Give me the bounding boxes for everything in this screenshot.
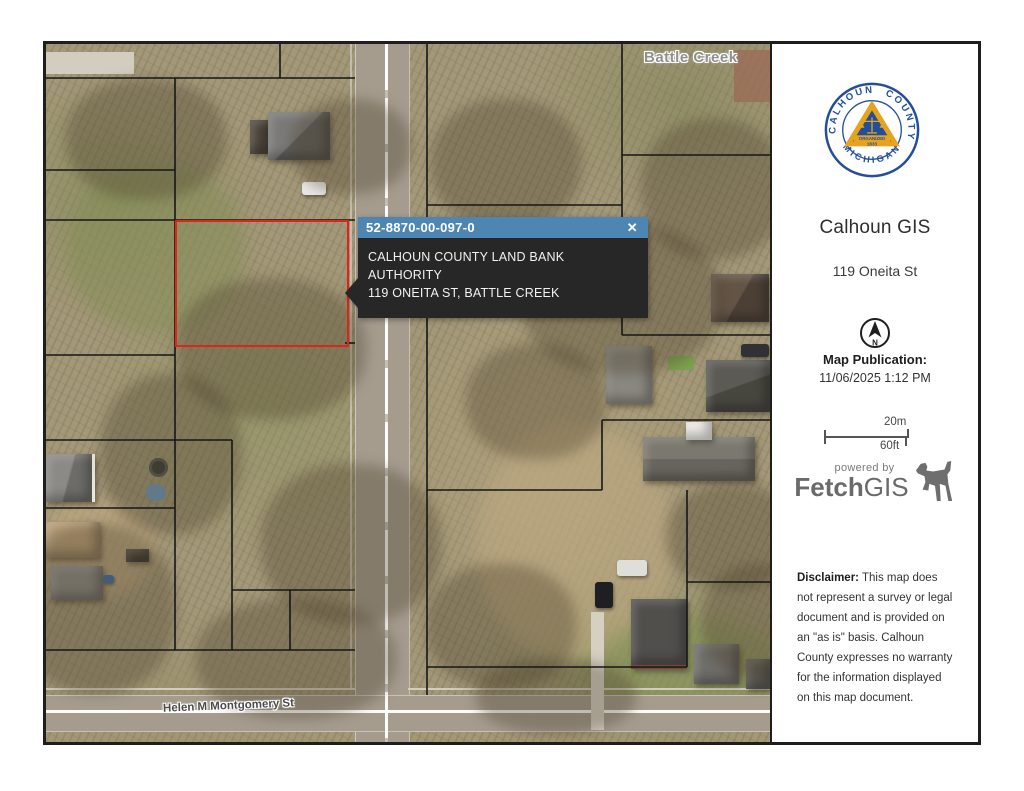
calhoun-county-seal-icon: CALHOUN COUNTY MICHIGAN ORGANIZED 1833 xyxy=(824,82,920,178)
parcel-lines-layer xyxy=(46,44,770,742)
selected-parcel-outline[interactable] xyxy=(175,220,349,347)
disclaimer-label: Disclaimer: xyxy=(797,572,859,584)
fetchgis-brand: powered by FetchGIS xyxy=(772,458,978,504)
scale-bar-line xyxy=(824,436,909,438)
popup-pointer xyxy=(345,278,358,308)
disclaimer-text: Disclaimer: This map does not represent … xyxy=(797,568,953,708)
map-address-subtitle: 119 Oneita St xyxy=(772,263,978,279)
aerial-map[interactable]: Battle Creek Helen M Montgomery St 52-88… xyxy=(46,44,770,742)
city-label: Battle Creek xyxy=(644,49,738,66)
popup-header: 52-8870-00-097-0 ✕ xyxy=(358,217,648,238)
parcel-owner: CALHOUN COUNTY LAND BANK AUTHORITY xyxy=(368,248,638,284)
scale-bar-tick xyxy=(905,438,907,446)
parcel-address: 119 ONEITA ST, BATTLE CREEK xyxy=(368,284,638,302)
app-title: Calhoun GIS xyxy=(772,217,978,239)
popup-body: CALHOUN COUNTY LAND BANK AUTHORITY 119 O… xyxy=(358,238,648,318)
parcel-id: 52-8870-00-097-0 xyxy=(366,220,475,235)
scale-bar-tick xyxy=(824,430,826,444)
seal-year-text: 1833 xyxy=(867,141,878,146)
scale-bar-tick xyxy=(907,429,909,438)
north-letter: N xyxy=(872,339,878,348)
scale-metric-label: 20m xyxy=(884,416,906,428)
brand-name-bold: Fetch xyxy=(794,472,863,502)
close-icon[interactable]: ✕ xyxy=(625,220,640,236)
gis-map-printout: Battle Creek Helen M Montgomery St 52-88… xyxy=(0,0,1024,791)
dog-logo-icon xyxy=(914,458,956,504)
scale-imperial-label: 60ft xyxy=(880,440,899,452)
map-frame: Battle Creek Helen M Montgomery St 52-88… xyxy=(43,41,981,745)
map-sidebar: CALHOUN COUNTY MICHIGAN ORGANIZED 1833 xyxy=(770,44,978,742)
brand-name-light: GIS xyxy=(864,472,909,502)
north-arrow-icon: N xyxy=(858,317,892,351)
parcel-info-popup: 52-8870-00-097-0 ✕ CALHOUN COUNTY LAND B… xyxy=(358,217,648,318)
publication-label: Map Publication: xyxy=(772,352,978,367)
publication-datetime: 11/06/2025 1:12 PM xyxy=(772,371,978,385)
